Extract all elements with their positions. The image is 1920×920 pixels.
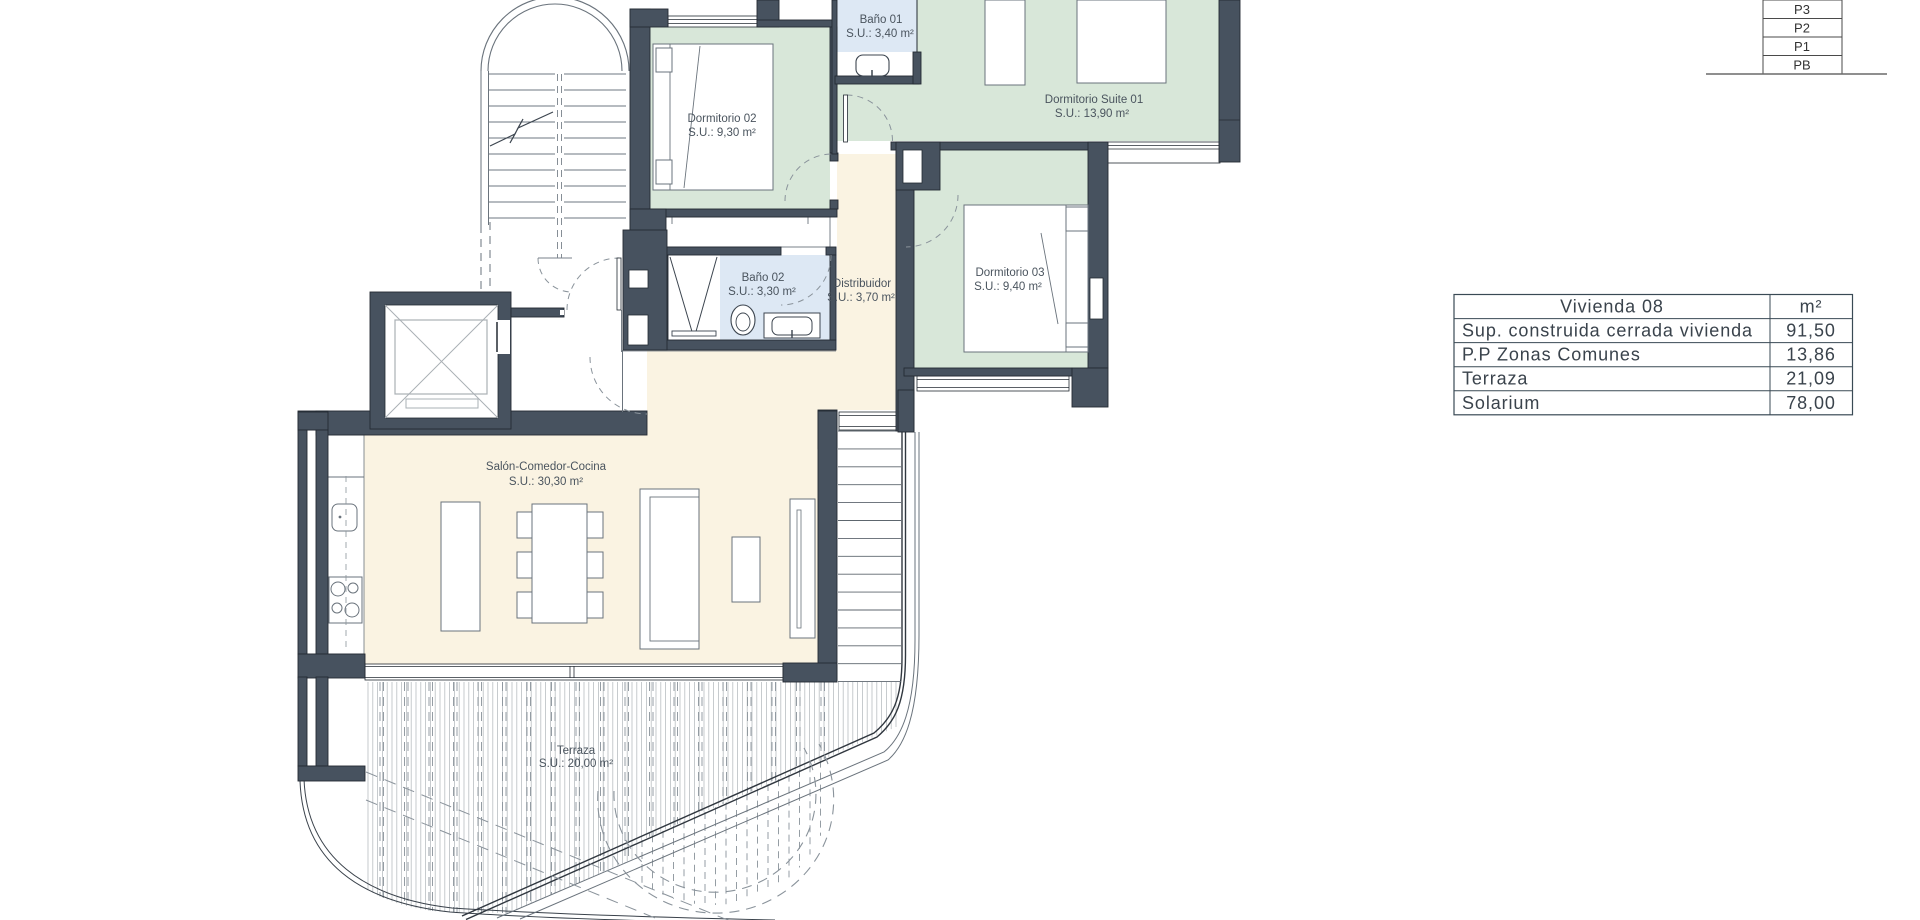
svg-text:Terraza: Terraza <box>1462 369 1528 389</box>
svg-text:78,00: 78,00 <box>1786 393 1836 413</box>
svg-text:PB: PB <box>1793 58 1810 73</box>
svg-text:91,50: 91,50 <box>1786 321 1836 341</box>
svg-text:S.U.: 13,90 m²: S.U.: 13,90 m² <box>1055 108 1129 120</box>
svg-text:Baño 02: Baño 02 <box>742 272 785 284</box>
svg-text:P2: P2 <box>1794 21 1810 36</box>
svg-text:S.U.: 30,30 m²: S.U.: 30,30 m² <box>509 476 583 488</box>
svg-text:Terraza: Terraza <box>557 745 596 757</box>
svg-text:Salón-Comedor-Cocina: Salón-Comedor-Cocina <box>486 461 607 473</box>
svg-text:Sup. construida cerrada vivien: Sup. construida cerrada vivienda <box>1462 321 1753 341</box>
svg-text:Dormitorio 03: Dormitorio 03 <box>975 267 1044 279</box>
svg-text:Dormitorio 02: Dormitorio 02 <box>687 113 756 125</box>
svg-text:m²: m² <box>1800 297 1823 317</box>
svg-text:Solarium: Solarium <box>1462 393 1540 413</box>
svg-text:Vivienda 08: Vivienda 08 <box>1560 297 1664 317</box>
svg-text:S.U.: 3,40 m²: S.U.: 3,40 m² <box>846 28 914 40</box>
svg-text:Baño 01: Baño 01 <box>860 14 903 26</box>
svg-text:S.U.: 3,30 m²: S.U.: 3,30 m² <box>728 286 796 298</box>
svg-text:P.P Zonas Comunes: P.P Zonas Comunes <box>1462 345 1641 365</box>
svg-text:S.U.: 20,00 m²: S.U.: 20,00 m² <box>539 758 613 770</box>
svg-text:S.U.: 3,70 m²: S.U.: 3,70 m² <box>827 292 895 304</box>
svg-text:Dormitorio Suite 01: Dormitorio Suite 01 <box>1045 94 1143 106</box>
svg-text:21,09: 21,09 <box>1786 369 1836 389</box>
svg-text:Distribuidor: Distribuidor <box>833 278 891 290</box>
svg-text:S.U.: 9,40 m²: S.U.: 9,40 m² <box>974 281 1042 293</box>
svg-text:13,86: 13,86 <box>1786 345 1836 365</box>
svg-text:S.U.: 9,30 m²: S.U.: 9,30 m² <box>688 127 756 139</box>
svg-text:P3: P3 <box>1794 2 1810 17</box>
svg-text:P1: P1 <box>1794 39 1810 54</box>
